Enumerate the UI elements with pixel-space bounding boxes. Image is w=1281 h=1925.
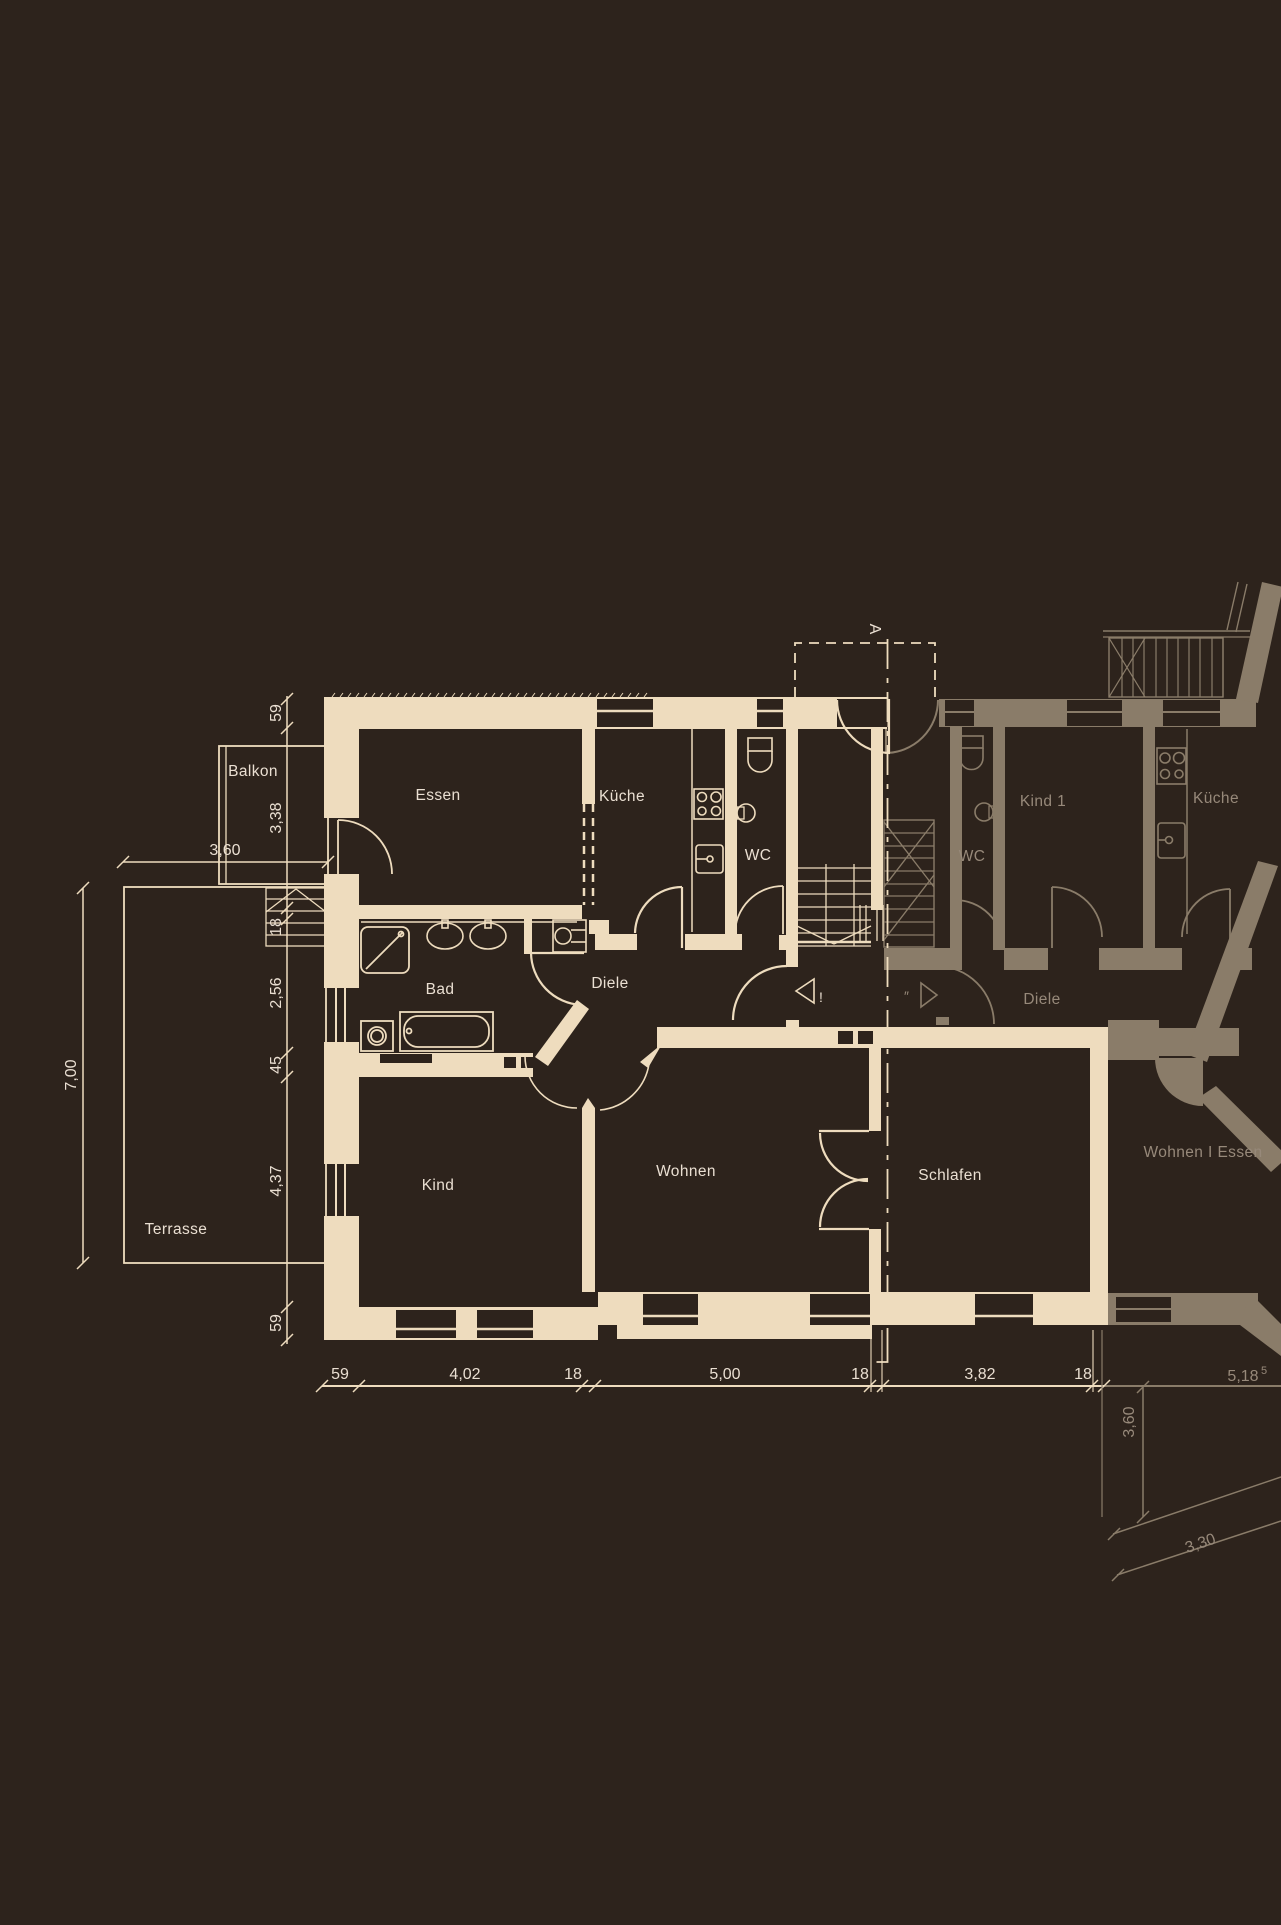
svg-text:5,18: 5,18 [1227,1368,1258,1385]
svg-text:Kind 1: Kind 1 [1020,793,1066,810]
svg-text:3,82: 3,82 [964,1366,995,1383]
svg-text:Wohnen: Wohnen [656,1163,716,1180]
svg-text:Bad: Bad [426,981,455,998]
svg-text:7,00: 7,00 [63,1059,80,1090]
svg-text:Wohnen I Essen: Wohnen I Essen [1143,1144,1262,1161]
svg-text:Diele: Diele [591,975,628,992]
svg-text:2,56: 2,56 [268,977,285,1008]
svg-text:Kind: Kind [422,1177,455,1194]
svg-text:18: 18 [851,1366,869,1383]
svg-text:!: ! [819,989,823,1005]
svg-text:59: 59 [268,1314,285,1332]
svg-text:4,02: 4,02 [449,1366,480,1383]
svg-text:18: 18 [268,918,285,936]
svg-text:59: 59 [331,1366,349,1383]
svg-text:59: 59 [268,704,285,722]
svg-text:Küche: Küche [599,788,645,805]
svg-text:3,60: 3,60 [209,842,240,859]
svg-text:5,00: 5,00 [709,1366,740,1383]
svg-text:Balkon: Balkon [228,763,278,780]
svg-text:WC: WC [745,847,772,864]
svg-text:4,37: 4,37 [268,1165,285,1196]
svg-text:WC: WC [959,848,986,865]
svg-text:3,60: 3,60 [1121,1406,1138,1437]
svg-text:A: A [866,624,883,635]
svg-text:18: 18 [564,1366,582,1383]
svg-text:45: 45 [268,1056,285,1074]
svg-text:Essen: Essen [415,787,460,804]
svg-text:Terrasse: Terrasse [145,1221,208,1238]
svg-text:18: 18 [1074,1366,1092,1383]
svg-text:3,38: 3,38 [268,802,285,833]
svg-text:Schlafen: Schlafen [918,1167,982,1184]
svg-text:5: 5 [1261,1365,1267,1377]
svg-text:Küche: Küche [1193,790,1239,807]
svg-text:″: ″ [904,988,909,1004]
svg-text:Diele: Diele [1023,991,1060,1008]
